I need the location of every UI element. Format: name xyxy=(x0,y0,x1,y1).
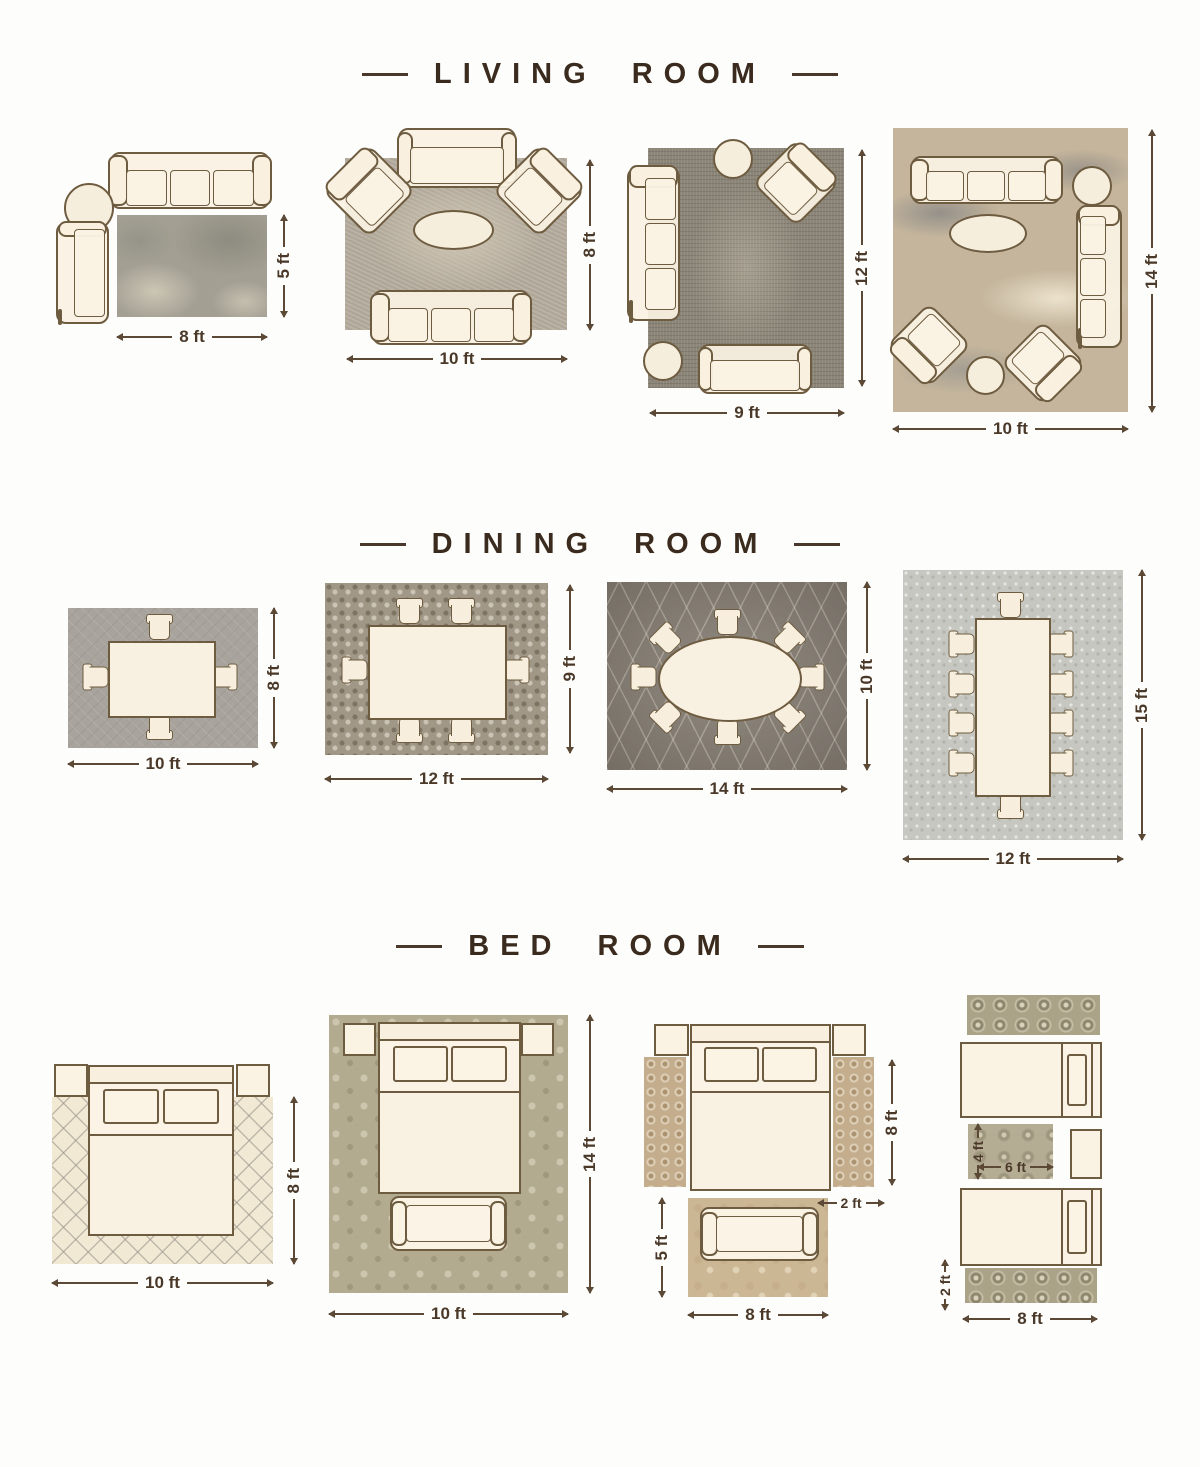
bench xyxy=(700,1207,819,1261)
twin-bed xyxy=(960,1188,1102,1266)
dimension-runner-width: 8 ft xyxy=(963,1308,1097,1330)
round-side-table xyxy=(966,356,1005,395)
heading-dash xyxy=(792,73,838,76)
dining-chair xyxy=(799,664,825,691)
dining-chair xyxy=(949,710,975,737)
dining-chair xyxy=(396,717,423,743)
heading-dash xyxy=(794,543,840,546)
dimension-runner-height: 8 ft xyxy=(880,1060,904,1185)
dining-table xyxy=(975,618,1051,797)
dimension-height: 8 ft xyxy=(578,160,602,330)
queen-bed xyxy=(378,1022,521,1194)
dimension-height: 5 ft xyxy=(272,215,296,317)
dining-chair xyxy=(631,664,657,691)
oval-coffee-table xyxy=(949,214,1027,253)
section-heading-dining-room: DINING ROOM xyxy=(0,528,1200,561)
nightstand xyxy=(54,1064,88,1097)
runner-rug xyxy=(644,1057,686,1187)
dimension-runner-height: 2 ft xyxy=(933,1260,957,1310)
dimension-foot-rug-height: 5 ft xyxy=(650,1198,674,1297)
dining-chair xyxy=(342,657,368,684)
dining-chair xyxy=(448,598,475,624)
dimension-width: 10 ft xyxy=(893,418,1128,440)
dimension-small-rug-width: 6 ft xyxy=(978,1156,1053,1178)
nightstand xyxy=(1070,1129,1102,1179)
dimension-width: 10 ft xyxy=(347,348,567,370)
runner-rug xyxy=(967,995,1100,1035)
three-seat-sofa xyxy=(627,167,680,321)
dining-chair xyxy=(1048,671,1074,698)
twin-bed xyxy=(960,1042,1102,1118)
heading-dash xyxy=(396,945,442,948)
three-seat-sofa xyxy=(1076,206,1122,348)
oval-coffee-table xyxy=(413,210,494,250)
dining-chair xyxy=(997,592,1024,618)
queen-bed xyxy=(690,1024,831,1191)
runner-rug xyxy=(833,1057,874,1187)
dining-chair xyxy=(1048,710,1074,737)
dining-table xyxy=(368,625,507,720)
heading-dash xyxy=(362,73,408,76)
dimension-height: 12 ft xyxy=(850,150,874,386)
dining-chair xyxy=(504,657,530,684)
dimension-height: 10 ft xyxy=(855,582,879,770)
bench xyxy=(390,1196,507,1251)
dining-chair xyxy=(448,717,475,743)
dimension-width: 10 ft xyxy=(329,1303,568,1325)
dimension-width: 12 ft xyxy=(325,768,548,790)
dimension-width: 14 ft xyxy=(607,778,847,800)
round-side-table xyxy=(1072,166,1112,206)
nightstand xyxy=(832,1024,866,1056)
section-title: BED ROOM xyxy=(468,930,732,963)
dimension-width: 8 ft xyxy=(117,326,267,348)
chaise xyxy=(56,222,109,324)
round-side-table xyxy=(643,341,683,381)
rug-size-guide: LIVING ROOM 8 ft 5 ft 10 ft 8 ft xyxy=(0,0,1200,1467)
section-title: DINING ROOM xyxy=(432,528,769,561)
dimension-width: 10 ft xyxy=(52,1272,273,1294)
dining-chair xyxy=(1048,750,1074,777)
heading-dash xyxy=(360,543,406,546)
loveseat xyxy=(398,128,516,188)
section-title: LIVING ROOM xyxy=(434,58,766,91)
three-seat-sofa xyxy=(372,290,530,345)
dimension-width: 9 ft xyxy=(650,402,844,424)
queen-bed xyxy=(88,1065,234,1236)
dimension-height: 15 ft xyxy=(1130,570,1154,840)
dining-chair xyxy=(714,719,741,745)
section-heading-living-room: LIVING ROOM xyxy=(0,58,1200,91)
dimension-runner-width: 2 ft xyxy=(818,1192,884,1214)
dining-chair xyxy=(949,750,975,777)
three-seat-sofa xyxy=(911,156,1061,204)
nightstand xyxy=(343,1023,376,1056)
dining-chair xyxy=(396,598,423,624)
dining-chair xyxy=(949,631,975,658)
dining-table xyxy=(108,641,216,718)
rug-living-8x5 xyxy=(117,215,267,317)
dimension-width: 12 ft xyxy=(903,848,1123,870)
three-seat-sofa xyxy=(110,152,270,209)
dimension-foot-rug-width: 8 ft xyxy=(688,1304,828,1326)
dimension-height: 9 ft xyxy=(558,585,582,753)
nightstand xyxy=(236,1064,270,1097)
dining-chair xyxy=(1048,631,1074,658)
dimension-width: 10 ft xyxy=(68,753,258,775)
section-heading-bed-room: BED ROOM xyxy=(0,930,1200,963)
dimension-height: 8 ft xyxy=(262,608,286,748)
nightstand xyxy=(654,1024,689,1056)
dining-chair xyxy=(146,614,173,640)
dining-chair xyxy=(949,671,975,698)
loveseat xyxy=(699,344,811,394)
dining-chair xyxy=(83,664,109,691)
dining-chair xyxy=(714,609,741,635)
heading-dash xyxy=(758,945,804,948)
oval-dining-table xyxy=(658,636,802,722)
round-side-table xyxy=(713,139,753,179)
dimension-height: 14 ft xyxy=(1140,130,1164,412)
dimension-height: 14 ft xyxy=(578,1015,602,1293)
runner-rug xyxy=(965,1268,1097,1303)
dimension-height: 8 ft xyxy=(282,1097,306,1264)
nightstand xyxy=(521,1023,554,1056)
